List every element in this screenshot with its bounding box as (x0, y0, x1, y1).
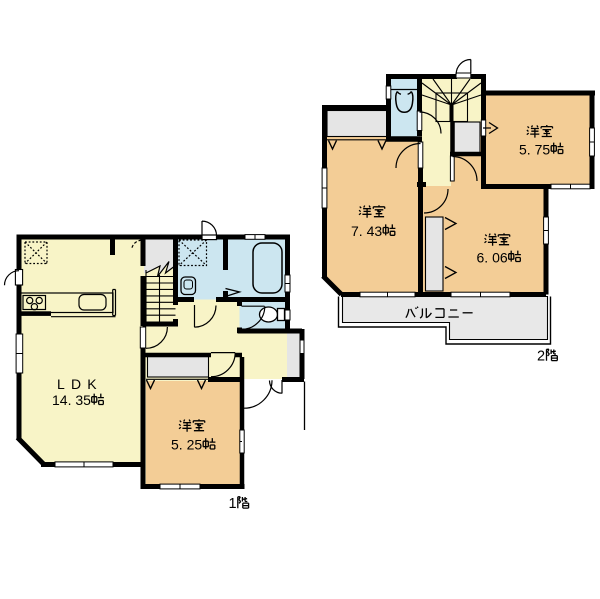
svg-text:14. 35: 14. 35 (52, 392, 91, 408)
svg-text:5. 75: 5. 75 (519, 142, 550, 158)
svg-text:2: 2 (537, 349, 545, 365)
svg-text:5. 25: 5. 25 (171, 437, 202, 453)
svg-text:LDK: LDK (57, 376, 103, 392)
svg-text:7. 43: 7. 43 (351, 223, 382, 239)
svg-text:1: 1 (229, 496, 237, 512)
svg-text:6. 06: 6. 06 (477, 250, 508, 266)
